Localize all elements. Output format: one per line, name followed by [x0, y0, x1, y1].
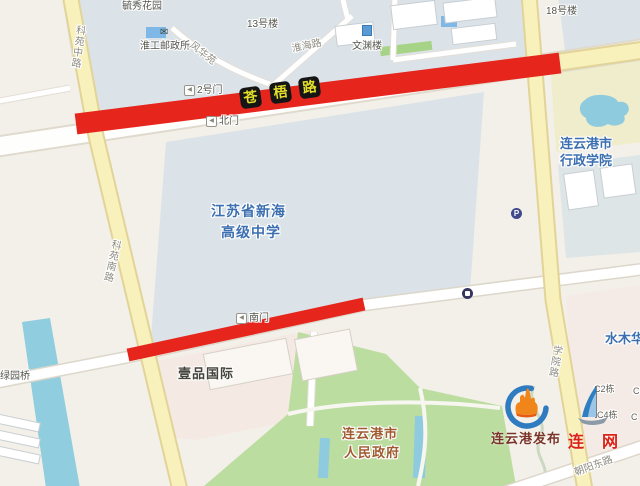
place-label-government-line1: 连云港市 [342, 427, 398, 442]
road-badge-cangwu-1: 苍 [239, 86, 263, 110]
poi-label-c-partial-2: C [631, 412, 638, 422]
gate-label-2: ◀ 2号门 [184, 85, 223, 97]
place-label-school-line2: 高级中学 [221, 224, 281, 240]
gate-icon[interactable]: ◀ [236, 313, 247, 324]
lyg-fabu-logo-icon [494, 384, 560, 430]
place-label-government-line2: 人民政府 [344, 446, 400, 461]
gate-label-north: ◀ 北门 [206, 116, 239, 128]
gate-label-south: ◀ 南门 [236, 313, 269, 325]
gate-icon[interactable]: ◀ [184, 85, 195, 96]
poi-label-yuxiu-garden: 毓秀花园 [122, 1, 162, 13]
road-badge-cangwu-2: 梧 [269, 81, 293, 105]
wenyuan-building-icon[interactable] [362, 25, 372, 36]
poi-label-lvyuan-bridge: 绿园桥 [0, 371, 30, 383]
place-label-college-line2: 行政学院 [560, 154, 612, 169]
lianwang-logo-icon [570, 384, 614, 430]
gate-label-text: 2号门 [197, 85, 223, 97]
gate-icon[interactable]: ◀ [206, 116, 217, 127]
poi-label-wenyuan-building: 文渊楼 [352, 41, 382, 53]
poi-label-building-18: 18号楼 [546, 6, 577, 18]
poi-label-post-office: 淮工邮政所 [140, 41, 190, 53]
watermark-lyg-fabu-text: 连云港发布 [491, 428, 561, 447]
poi-label-building-13: 13号楼 [247, 19, 278, 31]
gate-label-text: 北门 [219, 116, 239, 128]
road-badge-cangwu-3: 路 [298, 76, 322, 100]
transit-stop-glyph [465, 291, 470, 296]
gate-label-text: 南门 [249, 313, 269, 325]
post-office-icon[interactable]: ✉ [160, 27, 168, 39]
transit-stop-icon[interactable] [462, 288, 473, 299]
place-label-shuimuhua: 水木华 [605, 332, 640, 347]
watermark-lianwang-text: 连 网 [568, 428, 625, 452]
place-label-college-line1: 连云港市 [560, 137, 612, 152]
parking-icon[interactable]: P [511, 208, 522, 219]
place-label-school-line1: 江苏省新海 [211, 203, 286, 219]
map-canvas[interactable]: 苍 梧 路 科苑中路 科苑南路 淮海路 学院路 朝阳东路 毓秀花园 13号楼 1… [0, 0, 640, 486]
poi-label-c-partial-1: C [633, 386, 640, 396]
place-label-yipin-intl: 壹品国际 [178, 367, 234, 382]
